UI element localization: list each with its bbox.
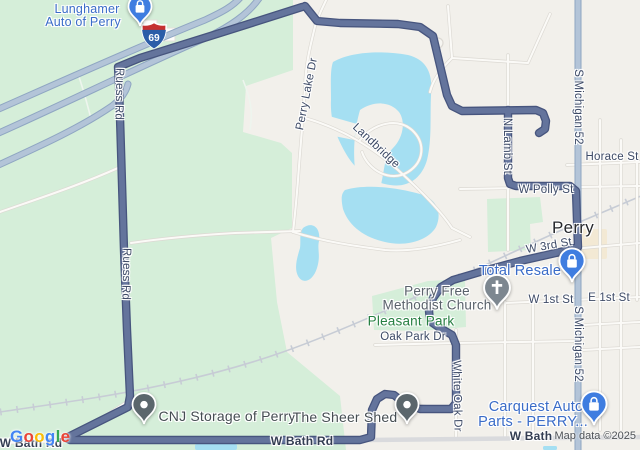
city-label-perry: Perry (552, 218, 594, 238)
road-label-white-oak: White Oak Dr (450, 360, 463, 432)
total-resale-pin shopping-pin-icon[interactable] (558, 247, 587, 288)
road-label-ruess-1: Ruess Rd (113, 68, 126, 120)
poi-label-cnj-storage[interactable]: CNJ Storage of Perry (158, 408, 295, 424)
google-logo-letter: e (61, 427, 71, 446)
road-label-w-bath-right: W Bath (510, 429, 553, 443)
poi-label-church-line2[interactable]: Methodist Church (383, 298, 492, 313)
road-label-s-michigan-1: S Michigan 52 (572, 69, 584, 144)
road-label-n-lamb: N Lamb St (501, 118, 513, 174)
google-logo-letter: G (10, 427, 24, 446)
map-canvas[interactable]: 69 (0, 0, 640, 450)
google-logo-letter: g (45, 427, 56, 446)
road-label-w-polly: W Polly St (518, 184, 573, 196)
road-label-s-michigan-2: S Michigan 52 (572, 306, 584, 381)
google-logo[interactable]: Google (10, 427, 70, 447)
poi-label-church-line1[interactable]: Perry Free (404, 284, 470, 299)
road-label-ruess-2: Ruess Rd (120, 248, 133, 300)
church-pin-icon[interactable] (482, 274, 512, 316)
carquest-pin shopping-pin-icon[interactable] (580, 390, 609, 431)
sheer-shed-pin dot-pin-icon[interactable] (394, 392, 421, 430)
google-logo-letter: o (34, 427, 45, 446)
road-label-e-1st: E 1st St (588, 292, 630, 304)
map-attribution: Map data ©2025 (555, 430, 637, 442)
svg-text:69: 69 (148, 33, 160, 44)
road-label-oak-park: Oak Park Dr (380, 331, 445, 343)
road-label-w-1st: W 1st St (528, 294, 573, 306)
poi-label-lunghamer-line1[interactable]: Lunghamer (54, 2, 119, 16)
poi-label-carquest-line1[interactable]: Carquest Auto (489, 399, 584, 415)
poi-label-carquest-line2[interactable]: Parts - PERRY... (478, 414, 588, 430)
poi-label-pleasant-park[interactable]: Pleasant Park (368, 314, 455, 329)
map-tiles (0, 0, 640, 450)
road-label-horace: Horace St (586, 151, 639, 163)
google-logo-letter: o (24, 427, 35, 446)
lunghamer-pin shopping-pin-icon[interactable] (127, 0, 154, 32)
road-label-w-bath-center: W Bath Rd (271, 434, 333, 448)
poi-label-lunghamer-line2[interactable]: Auto of Perry (45, 15, 121, 29)
cnj-storage-pin dot-pin-icon[interactable] (131, 392, 158, 430)
poi-label-sheer-shed[interactable]: The Sheer Shed (293, 409, 398, 425)
